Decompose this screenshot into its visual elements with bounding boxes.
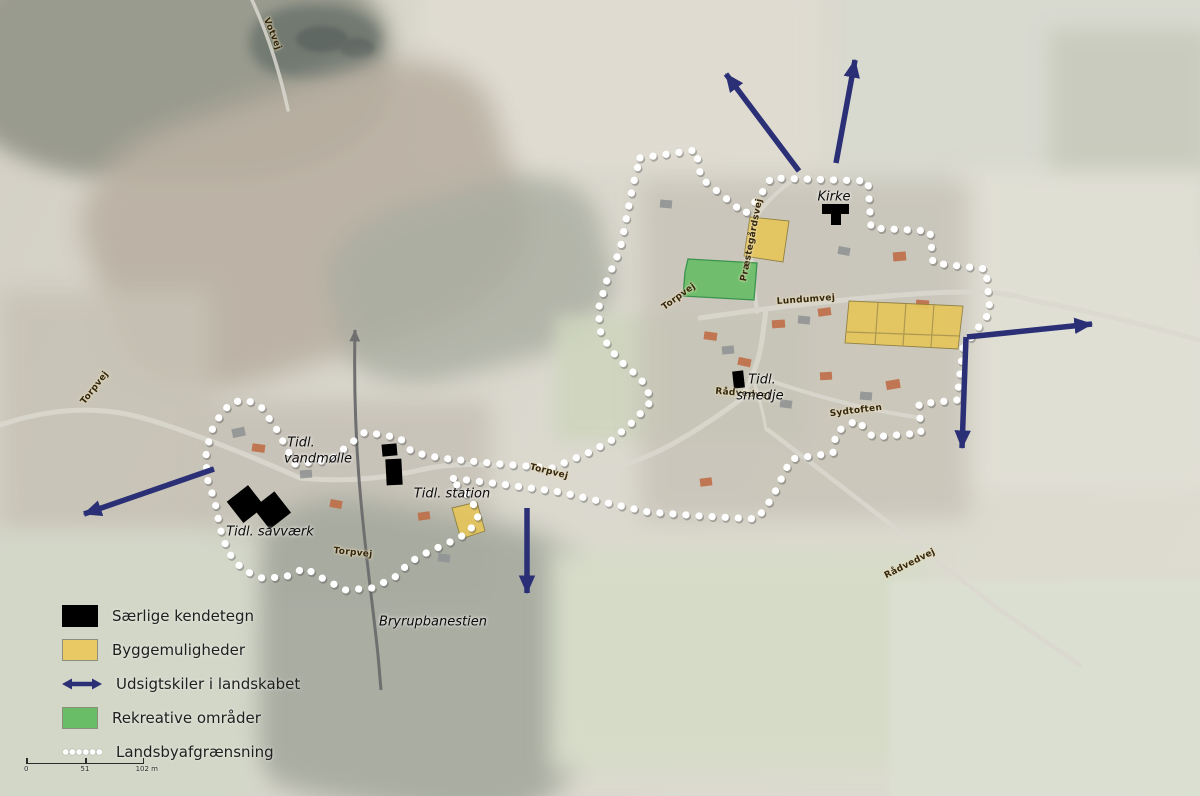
- legend-label: Særlige kendetegn: [112, 607, 254, 625]
- double-arrow-icon: [62, 675, 102, 693]
- landmark-swatch: [62, 605, 98, 627]
- village-plan-map: VotvejTorpvejTorpvejTorpvejTorpvejLundum…: [0, 0, 1200, 796]
- legend-item-saerlige-kendetegn: Særlige kendetegn: [62, 604, 300, 627]
- legend-label: Rekreative områder: [112, 709, 261, 727]
- legend-label: Byggemuligheder: [112, 641, 245, 659]
- building-plot-swatch: [62, 639, 98, 661]
- legend-label: Udsigtskiler i landskabet: [116, 675, 300, 693]
- village-boundary: [206, 150, 991, 592]
- recreational-swatch: [62, 707, 98, 729]
- legend-item-udsigtskiler: Udsigtskiler i landskabet: [62, 672, 300, 695]
- scale-tick: [85, 758, 87, 764]
- heritage-trail-arrow: [355, 330, 381, 690]
- dotted-line-icon: [62, 747, 102, 757]
- recreational-area: [683, 259, 757, 300]
- map-legend: Særlige kendetegn Byggemuligheder Udsigt…: [62, 604, 300, 763]
- station-symbol-b: [385, 459, 402, 486]
- smithy-symbol: [732, 370, 745, 388]
- legend-item-rekreative: Rekreative områder: [62, 706, 300, 729]
- buildings: [231, 199, 929, 562]
- scale-tick: [26, 758, 28, 764]
- scale-label: 51: [81, 765, 90, 773]
- scale-label: 0: [24, 765, 28, 773]
- scale-label: 102 m: [136, 765, 158, 773]
- scale-bar: 0 51 102 m: [26, 757, 144, 773]
- sawmill-symbol-b: [253, 491, 291, 529]
- station-symbol-a: [382, 443, 398, 456]
- church-symbol: [822, 204, 849, 225]
- legend-item-byggemuligheder: Byggemuligheder: [62, 638, 300, 661]
- scale-tick: [143, 758, 145, 764]
